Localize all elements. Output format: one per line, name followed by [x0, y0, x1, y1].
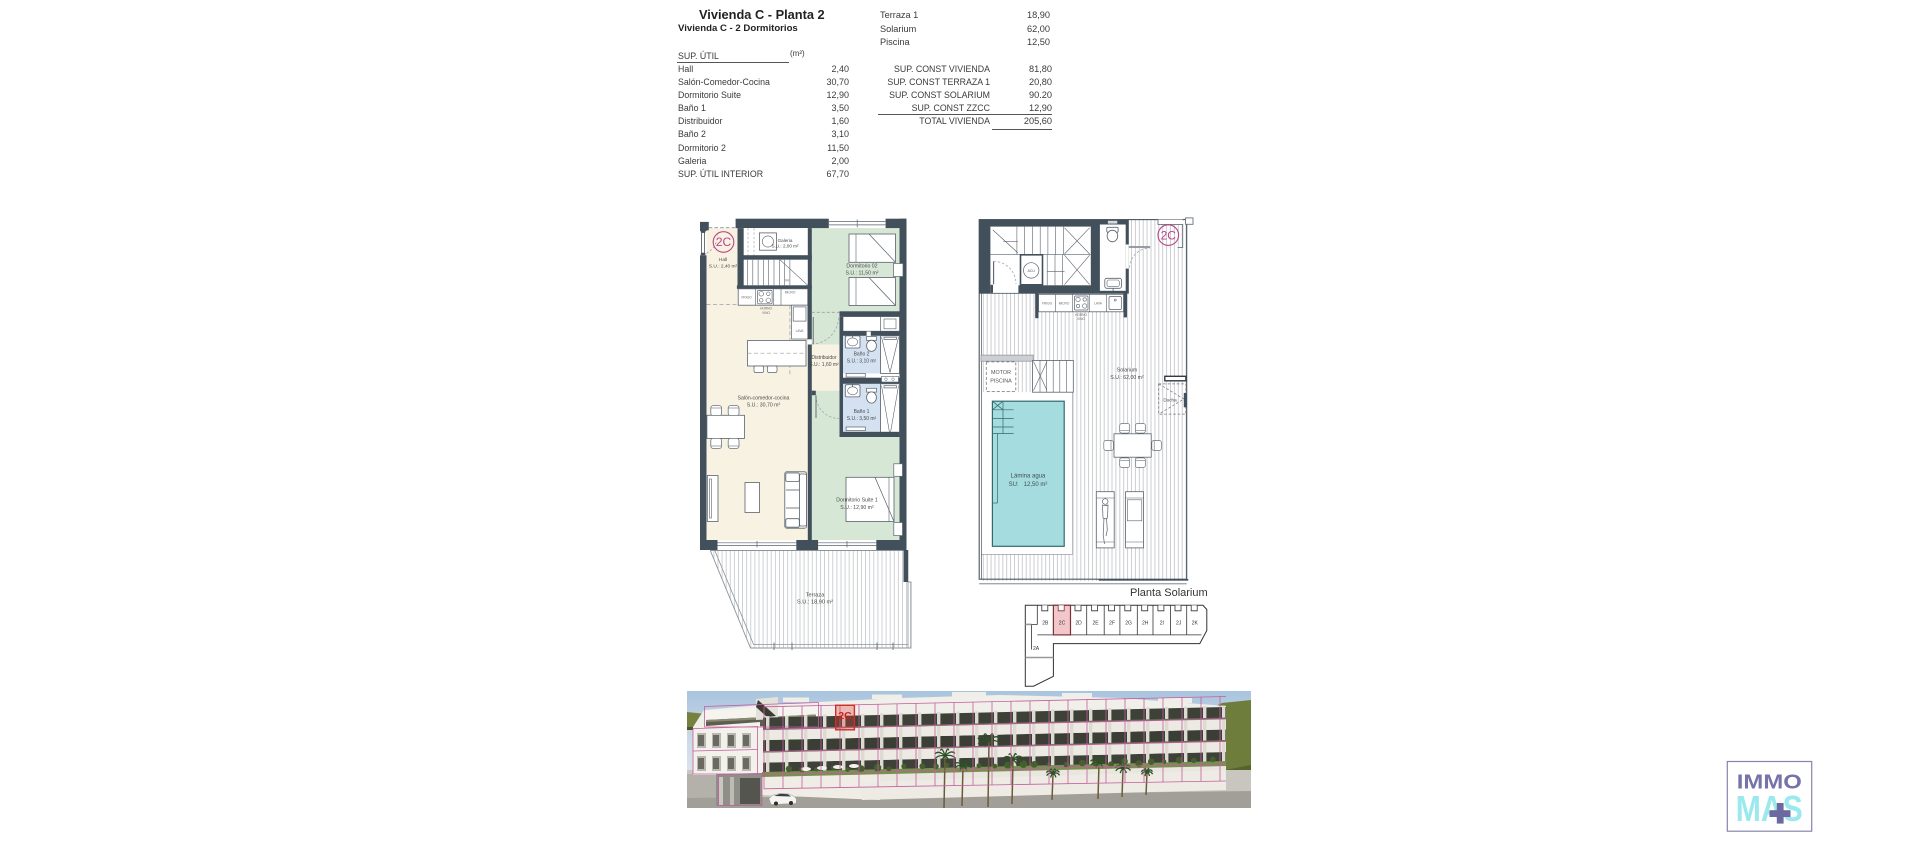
svg-text:ACU: ACU — [1028, 269, 1036, 273]
svg-text:PISCINA: PISCINA — [990, 378, 1012, 384]
svg-text:LAVA: LAVA — [796, 329, 805, 333]
svg-text:04: 04 — [785, 279, 789, 283]
svg-text:Salón-comedor-cocina: Salón-comedor-cocina — [738, 395, 790, 401]
svg-text:MAS: MAS — [1736, 788, 1803, 829]
svg-text:Lámina agua: Lámina agua — [1011, 474, 1046, 480]
svg-text:SU: 12,50 m²: SU: 12,50 m² — [1009, 482, 1048, 488]
svg-text:Baño 1: Baño 1 — [854, 409, 870, 415]
svg-text:S.U.: 18,90 m²: S.U.: 18,90 m² — [797, 600, 833, 606]
svg-text:Galeria: Galeria — [778, 238, 793, 243]
svg-text:Terraza: Terraza — [806, 593, 826, 599]
svg-text:2C: 2C — [716, 235, 732, 249]
svg-text:MICRO: MICRO — [1059, 302, 1070, 306]
svg-text:2C: 2C — [1059, 621, 1066, 627]
svg-text:2G: 2G — [1125, 621, 1132, 627]
svg-text:S.U.: 3,50 m²: S.U.: 3,50 m² — [847, 416, 877, 422]
svg-text:S.U.: 3,10 m²: S.U.: 3,10 m² — [847, 359, 877, 365]
svg-text:2B: 2B — [1042, 621, 1049, 627]
svg-text:FRIGO: FRIGO — [741, 296, 752, 300]
svg-text:S.U.: 2,40 m²: S.U.: 2,40 m² — [709, 264, 738, 270]
svg-text:2E: 2E — [1092, 621, 1099, 627]
svg-text:2J: 2J — [1176, 621, 1182, 627]
svg-text:2D: 2D — [1075, 621, 1082, 627]
svg-text:S.U.: 30,70 m²: S.U.: 30,70 m² — [747, 403, 781, 409]
svg-text:VINO: VINO — [1077, 317, 1085, 321]
svg-text:S.U.: 1,60 m²: S.U.: 1,60 m² — [809, 362, 839, 368]
svg-text:S.U.: 12,90 m²: S.U.: 12,90 m² — [840, 505, 874, 511]
svg-text:Distribuidor: Distribuidor — [811, 355, 837, 361]
svg-text:FRIGO: FRIGO — [1042, 302, 1053, 306]
svg-text:Solarium: Solarium — [1117, 368, 1137, 374]
svg-text:2H: 2H — [1142, 621, 1149, 627]
svg-text:Dormitorio 02: Dormitorio 02 — [846, 263, 877, 269]
svg-text:LAVA: LAVA — [1094, 302, 1103, 306]
svg-text:Baño 2: Baño 2 — [854, 352, 870, 358]
svg-text:S.U.: 2,00 m²: S.U.: 2,00 m² — [771, 244, 799, 249]
svg-text:Ducha: Ducha — [1163, 397, 1177, 402]
svg-text:2C: 2C — [838, 710, 852, 722]
svg-text:2K: 2K — [1192, 621, 1199, 627]
svg-text:2F: 2F — [1109, 621, 1115, 627]
svg-text:Dormitorio Suite 1: Dormitorio Suite 1 — [836, 498, 878, 504]
svg-text:2C: 2C — [1161, 228, 1177, 242]
svg-text:VINO: VINO — [762, 311, 770, 315]
svg-text:S.U.: 11,50 m²: S.U.: 11,50 m² — [845, 270, 878, 276]
svg-text:MOTOR: MOTOR — [991, 370, 1011, 376]
svg-text:2I: 2I — [1160, 621, 1164, 627]
svg-text:MICRO: MICRO — [785, 291, 796, 295]
svg-text:Hall: Hall — [719, 257, 727, 263]
svg-text:2A: 2A — [1033, 646, 1040, 652]
svg-text:S.U.: 62,00 m²: S.U.: 62,00 m² — [1110, 375, 1144, 381]
